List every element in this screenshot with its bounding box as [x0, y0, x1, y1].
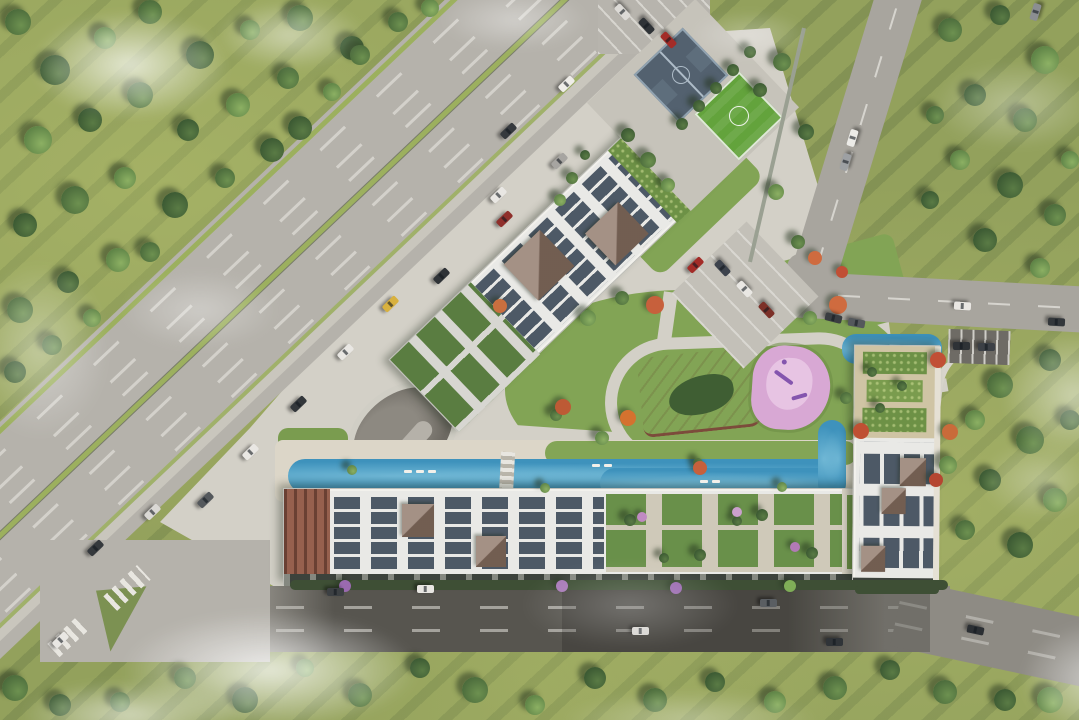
cloud: [690, 10, 810, 60]
cloud-layer: [0, 0, 1079, 720]
cloud: [20, 680, 240, 720]
cloud: [440, 0, 590, 50]
cloud: [0, 260, 110, 440]
cloud: [520, 560, 740, 650]
cloud: [980, 440, 1079, 520]
cloud: [120, 270, 280, 350]
cloud: [30, 10, 230, 120]
cloud: [1020, 620, 1079, 720]
cloud: [560, 690, 820, 720]
aerial-site-plan: [0, 0, 1079, 720]
cloud: [215, 0, 365, 70]
cloud: [930, 60, 1079, 150]
